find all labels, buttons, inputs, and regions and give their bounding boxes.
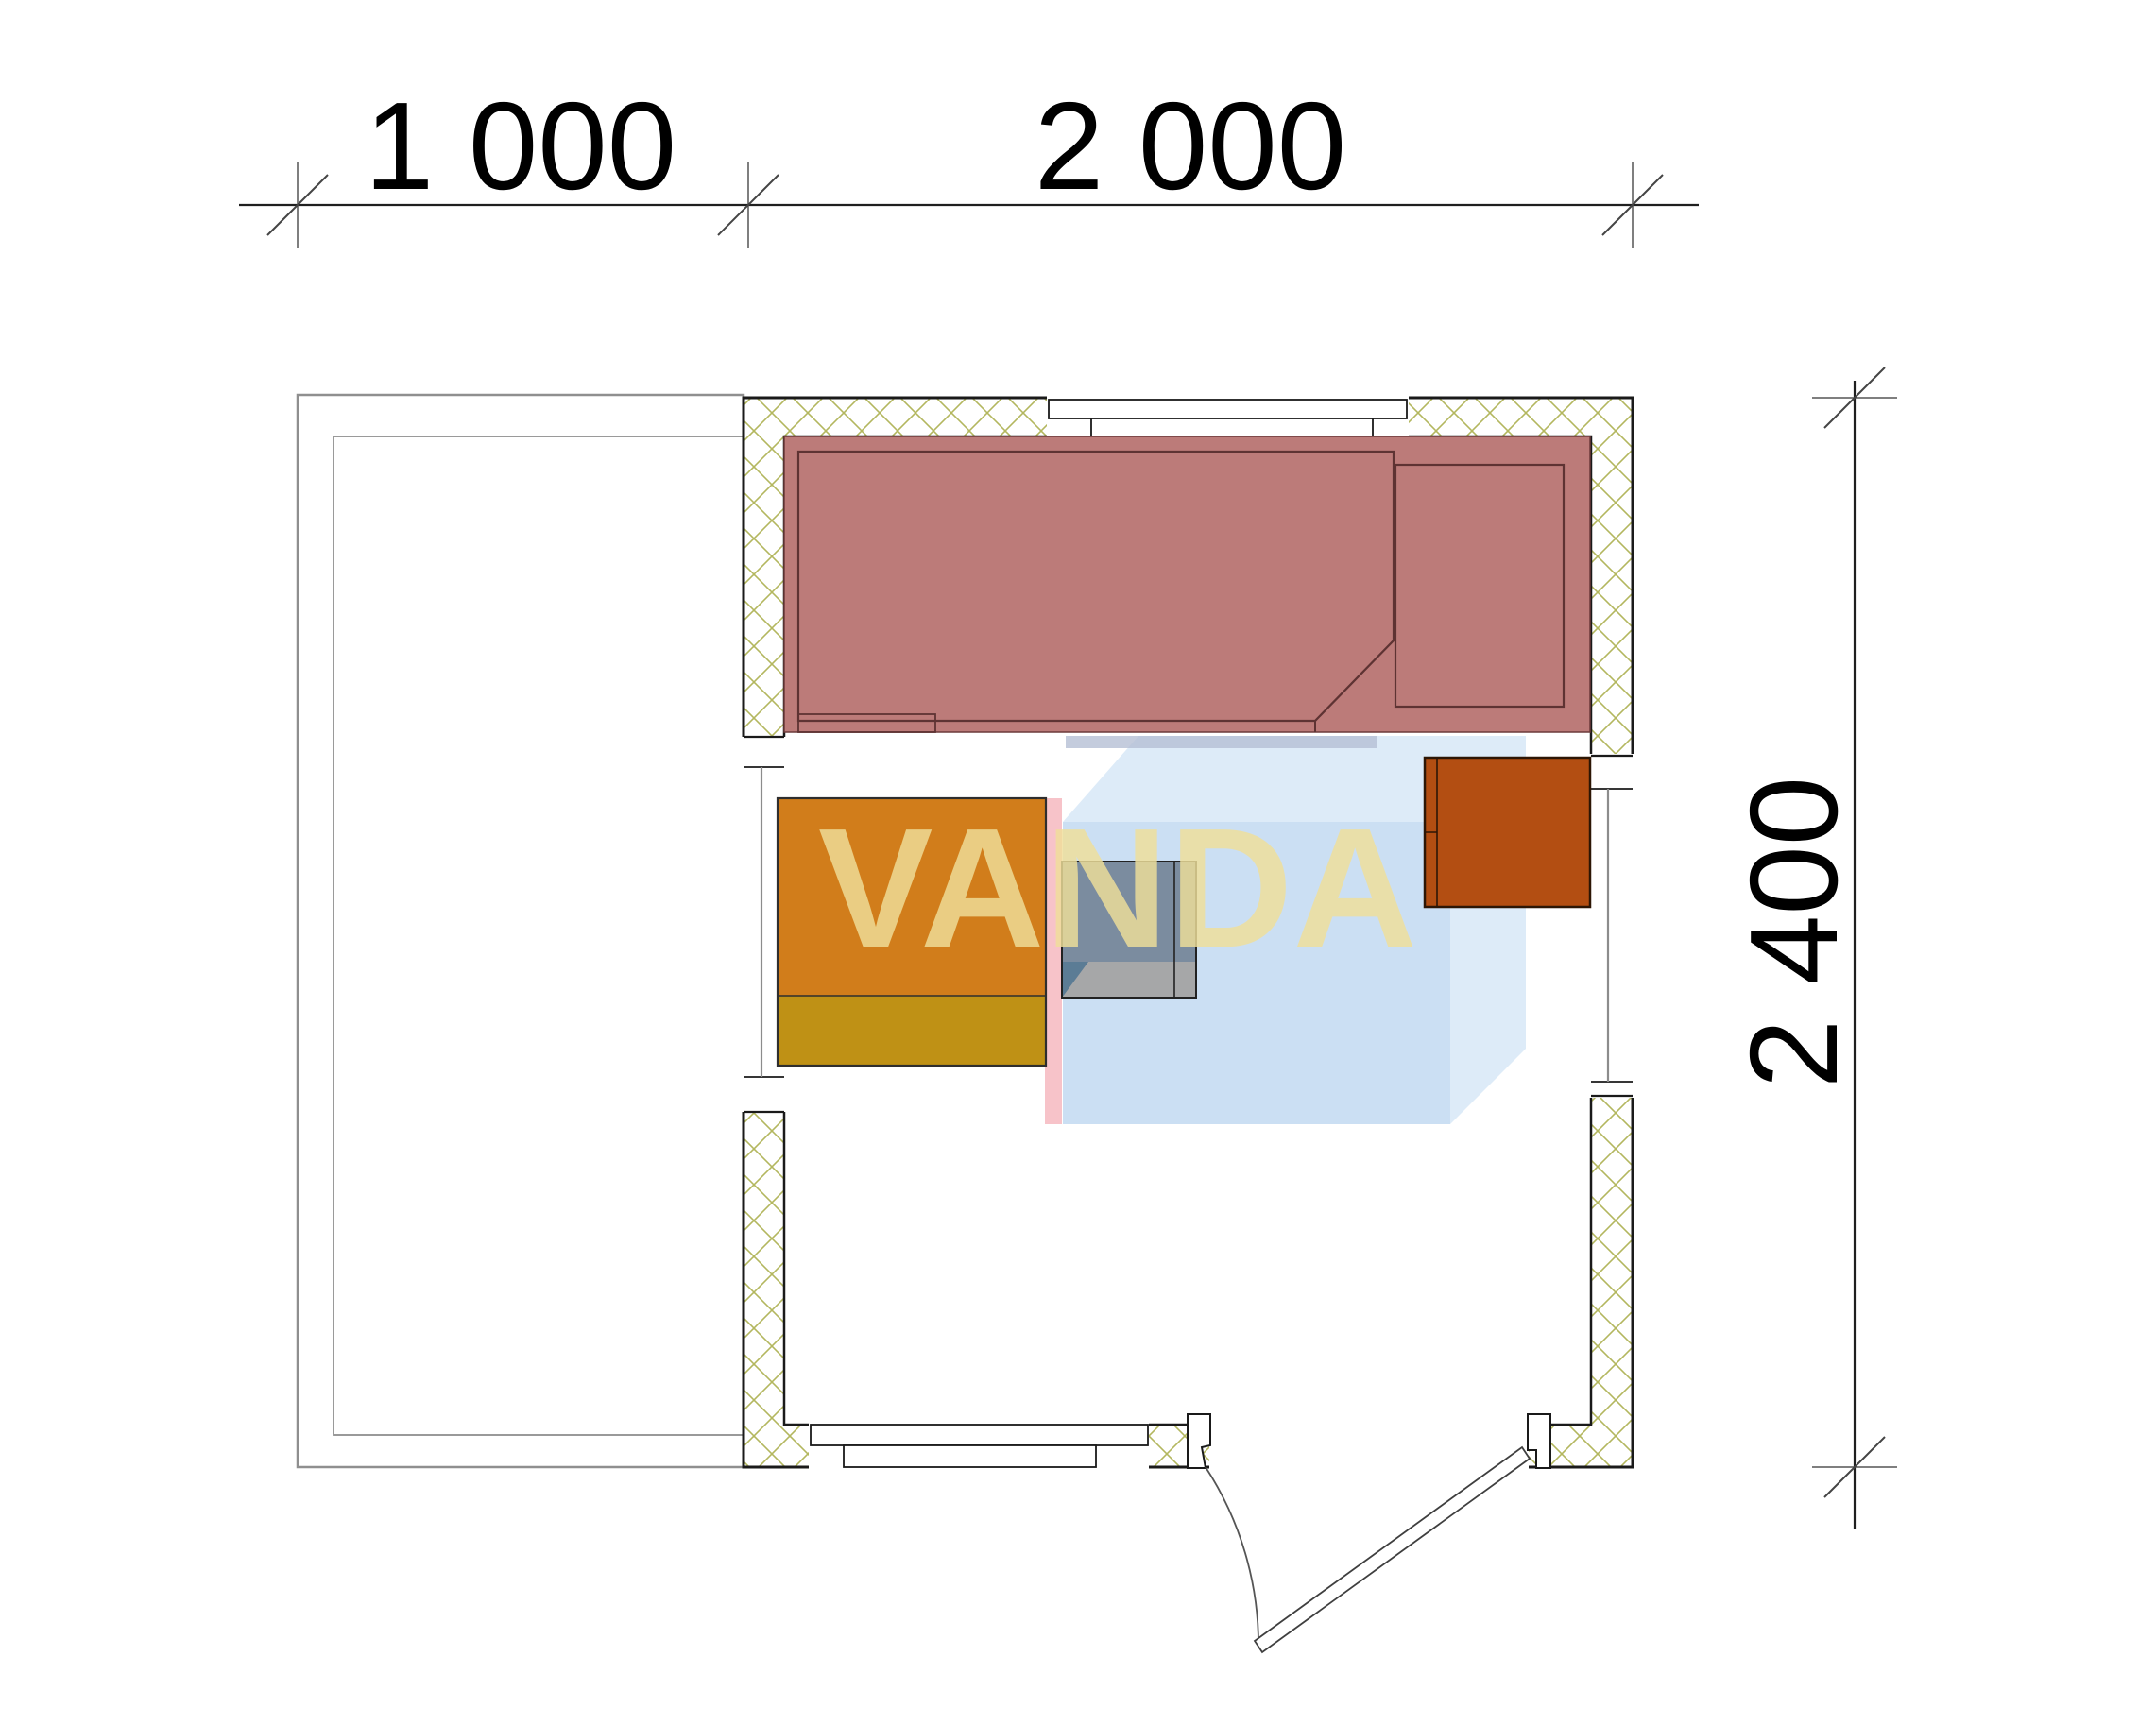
- right-window-opening: [1587, 754, 1636, 1098]
- logo-box-top-edge-band: [1066, 736, 1377, 748]
- dimension-label-1000: 1 000: [365, 77, 676, 215]
- door-swing-arc: [1206, 1467, 1258, 1647]
- terrace: [298, 395, 744, 1467]
- heater-body: [1425, 758, 1590, 907]
- dimension-label-2000: 2 000: [1035, 77, 1346, 215]
- top-window-frame-outer: [1049, 400, 1407, 418]
- dimension-label-2400: 2 400: [1724, 777, 1863, 1088]
- door-opening: [1209, 1419, 1529, 1474]
- bench-platform-area: [784, 436, 1590, 732]
- terrace-inner-outline: [334, 436, 744, 1435]
- heater: [1425, 758, 1590, 907]
- dimension-top: 1 000 2 000: [239, 77, 1699, 248]
- dimension-right: 2 400: [1724, 367, 1897, 1529]
- door-leaf: [1255, 1447, 1530, 1652]
- top-window-frame-inner: [1091, 418, 1373, 436]
- bottom-window-frame-outer: [844, 1445, 1096, 1467]
- watermark-text: VANDA: [818, 794, 1417, 983]
- right-window: [1587, 754, 1636, 1098]
- top-window: [1047, 394, 1409, 440]
- bottom-window: [809, 1421, 1149, 1471]
- floor-plan-page: VANDA 1 000 2 000 2 400: [0, 0, 2156, 1725]
- bench-platform: [784, 436, 1590, 732]
- table-base-surface: [778, 996, 1046, 1066]
- bottom-window-frame-inner: [811, 1425, 1148, 1445]
- floor-plan-canvas: VANDA 1 000 2 000 2 400: [0, 0, 2156, 1725]
- terrace-outer-outline: [298, 395, 744, 1467]
